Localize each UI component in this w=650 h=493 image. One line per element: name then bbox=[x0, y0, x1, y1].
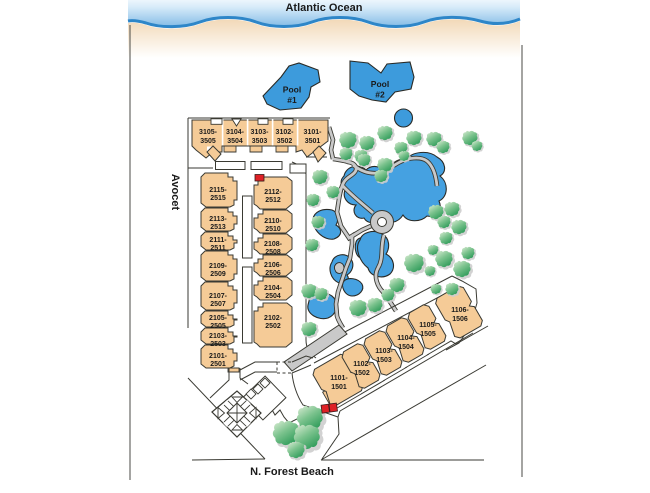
svg-text:3501: 3501 bbox=[305, 138, 321, 145]
svg-text:2110-: 2110- bbox=[264, 218, 282, 225]
svg-text:3103-: 3103- bbox=[251, 129, 270, 136]
svg-text:3105-: 3105- bbox=[199, 129, 218, 136]
svg-text:3505: 3505 bbox=[200, 138, 216, 145]
svg-text:2510: 2510 bbox=[265, 226, 281, 233]
svg-text:Atlantic Ocean: Atlantic Ocean bbox=[285, 2, 362, 14]
svg-text:3503: 3503 bbox=[252, 138, 268, 145]
svg-text:2515: 2515 bbox=[210, 195, 226, 202]
svg-text:2503: 2503 bbox=[210, 341, 226, 348]
svg-text:Pool: Pool bbox=[283, 85, 301, 95]
svg-text:1502: 1502 bbox=[354, 370, 370, 377]
svg-text:2508: 2508 bbox=[265, 249, 281, 256]
svg-text:2504: 2504 bbox=[265, 293, 281, 300]
svg-text:2103-: 2103- bbox=[209, 333, 228, 340]
svg-text:2107-: 2107- bbox=[209, 293, 228, 300]
svg-text:3504: 3504 bbox=[227, 138, 243, 145]
svg-text:2105-: 2105- bbox=[209, 315, 228, 322]
svg-text:2109-: 2109- bbox=[209, 263, 228, 270]
svg-text:2513: 2513 bbox=[210, 224, 226, 231]
svg-text:N. Forest Beach: N. Forest Beach bbox=[250, 466, 334, 478]
svg-text:1503: 1503 bbox=[376, 357, 392, 364]
svg-text:2101-: 2101- bbox=[209, 353, 228, 360]
svg-text:1106-: 1106- bbox=[451, 307, 469, 314]
svg-text:1104-: 1104- bbox=[397, 335, 415, 342]
svg-text:2511: 2511 bbox=[210, 245, 225, 252]
svg-text:#2: #2 bbox=[375, 90, 385, 100]
svg-text:2507: 2507 bbox=[210, 301, 226, 308]
svg-text:2506: 2506 bbox=[265, 270, 281, 277]
svg-text:2501: 2501 bbox=[210, 361, 226, 368]
svg-text:1105-: 1105- bbox=[419, 322, 437, 329]
svg-text:2111-: 2111- bbox=[209, 237, 227, 244]
svg-text:2115-: 2115- bbox=[209, 187, 227, 194]
svg-text:3101-: 3101- bbox=[304, 129, 323, 136]
svg-text:3502: 3502 bbox=[277, 138, 293, 145]
svg-text:1101-: 1101- bbox=[330, 375, 348, 382]
svg-text:Avocet: Avocet bbox=[169, 174, 181, 211]
svg-text:Pool: Pool bbox=[371, 79, 389, 89]
svg-text:#1: #1 bbox=[287, 95, 297, 105]
svg-text:2512: 2512 bbox=[265, 197, 281, 204]
svg-text:1102-: 1102- bbox=[353, 361, 371, 368]
svg-text:3104-: 3104- bbox=[226, 129, 245, 136]
svg-text:1505: 1505 bbox=[420, 331, 436, 338]
svg-text:1103-: 1103- bbox=[375, 348, 393, 355]
svg-text:3102-: 3102- bbox=[276, 129, 295, 136]
svg-text:1501: 1501 bbox=[331, 384, 347, 391]
svg-text:2502: 2502 bbox=[265, 323, 281, 330]
svg-text:2106-: 2106- bbox=[264, 262, 283, 269]
svg-text:2104-: 2104- bbox=[264, 285, 283, 292]
svg-text:2102-: 2102- bbox=[264, 315, 283, 322]
svg-text:2112-: 2112- bbox=[264, 189, 282, 196]
svg-text:2505: 2505 bbox=[210, 323, 226, 330]
svg-text:2509: 2509 bbox=[210, 271, 226, 278]
svg-text:1504: 1504 bbox=[398, 344, 414, 351]
svg-text:2108-: 2108- bbox=[264, 241, 283, 248]
svg-text:1506: 1506 bbox=[452, 316, 468, 323]
svg-text:2113-: 2113- bbox=[209, 216, 227, 223]
